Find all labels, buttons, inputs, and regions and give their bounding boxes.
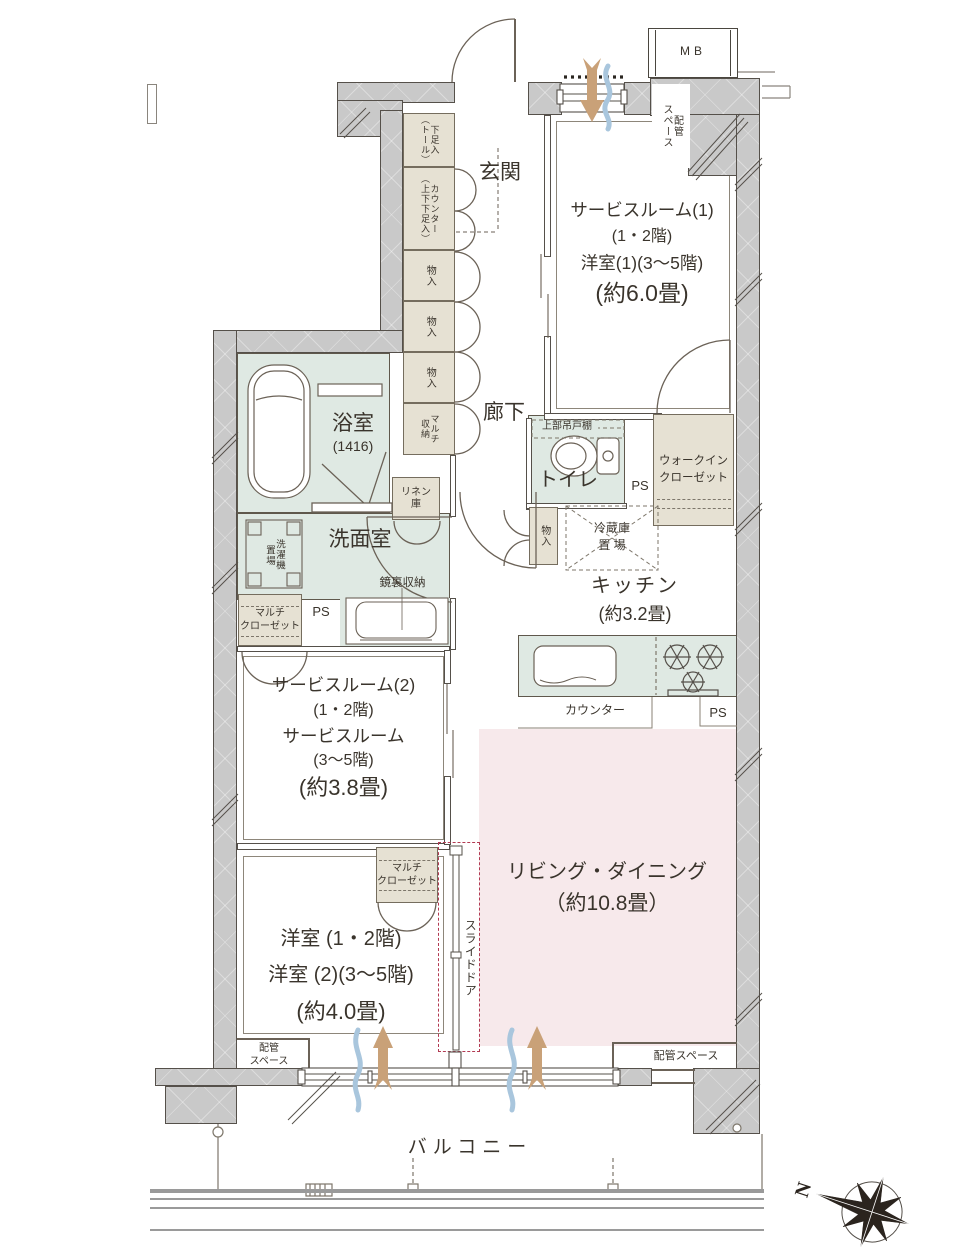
washroom-label: 洗面室 <box>300 527 420 553</box>
slide-door-leaves <box>450 846 462 1050</box>
neighbor-marks-right <box>738 72 790 98</box>
balcony-railing-4 <box>150 1229 764 1231</box>
bath-folding-door <box>312 452 392 512</box>
mirror-storage-label: 鏡裏収納 <box>355 576 450 590</box>
genkan-label: 玄関 <box>466 160 534 186</box>
balcony-details <box>213 1124 762 1196</box>
pipe-space-bl-label: 配管 スペース <box>234 1042 304 1068</box>
ps-toilet-label: PS <box>626 478 654 494</box>
toilet-label: トイレ <box>530 468 606 493</box>
pipe-space-br-label: 配管スペース <box>636 1050 736 1064</box>
vanity <box>346 588 448 644</box>
kitchen-label: キッチン (約3.2畳) <box>570 572 700 628</box>
kitchen-closet-doors <box>504 510 530 566</box>
compass-north-label: N <box>791 1179 817 1200</box>
burner-1 <box>663 645 691 669</box>
sr2-sliding-door <box>447 684 453 778</box>
washer-label: 洗濯機 置場 <box>252 526 296 584</box>
corridor-label: 廊下 <box>468 400 540 426</box>
compass-rose: N <box>782 1152 919 1258</box>
balcony-railing-1 <box>150 1189 764 1193</box>
bath-label: 浴室 (1416) <box>300 410 406 456</box>
ps-kitchen-label: PS <box>704 705 732 721</box>
balcony-railing-2 <box>150 1198 764 1200</box>
counter-label: カウンター <box>558 703 632 718</box>
upper-cabinet-label: 上部吊戸棚 <box>536 421 598 434</box>
sr1-sliding-door <box>541 254 548 338</box>
ps-washroom-label: PS <box>306 604 336 620</box>
burner-3 <box>681 672 705 692</box>
service2-label: サービスルーム(2) (1・2階) サービスルーム (3〜5階) (約3.8畳) <box>243 672 444 803</box>
stove <box>656 637 724 696</box>
balcony-windows <box>298 1052 620 1086</box>
fridge-label: 冷蔵庫 置 場 <box>566 520 658 554</box>
fixtures-layer: N <box>0 0 980 1260</box>
bedroom-label: 洋室 (1・2階) 洋室 (2)(3〜5階) (約4.0畳) <box>238 922 444 1031</box>
entrance-door <box>452 19 515 82</box>
balcony-label: バルコニー <box>370 1136 570 1160</box>
burner-2 <box>696 645 724 669</box>
living-label: リビング・ダイニング （約10.8畳） <box>492 856 722 920</box>
balcony-railing-3 <box>150 1207 764 1209</box>
toilet-door <box>460 492 536 568</box>
kitchen-sink <box>534 646 616 686</box>
wic-door <box>657 340 730 413</box>
floor-plan: 下足入 （トール） カウンター （上下下足入） 物入 物入 物入 マルチ 収納 … <box>0 0 980 1260</box>
service1-label: サービスルーム(1) (1・2階) 洋室(1)(3〜5階) (約6.0畳) <box>548 196 736 310</box>
